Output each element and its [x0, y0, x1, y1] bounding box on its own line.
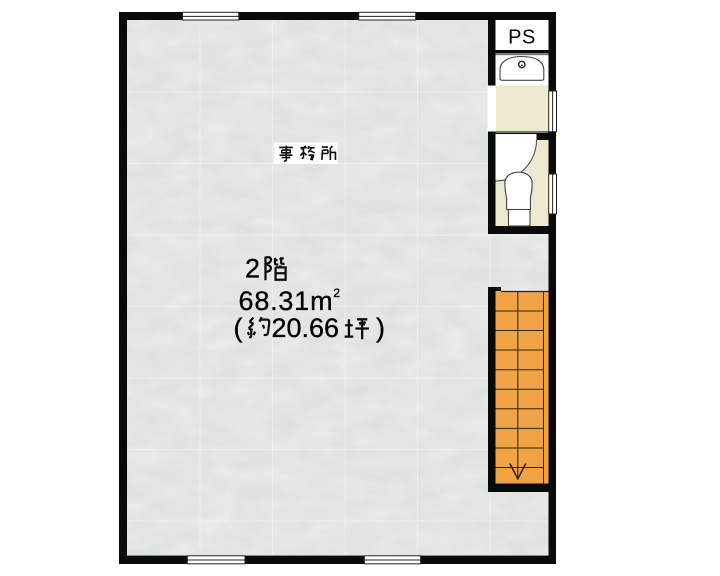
svg-text:PS: PS: [508, 26, 536, 48]
svg-text:68.31m2: 68.31m2: [239, 286, 341, 316]
svg-text:(: (: [234, 313, 243, 343]
svg-text:2: 2: [245, 254, 260, 284]
svg-text:20.66: 20.66: [272, 313, 340, 343]
svg-text:): ): [376, 313, 385, 343]
